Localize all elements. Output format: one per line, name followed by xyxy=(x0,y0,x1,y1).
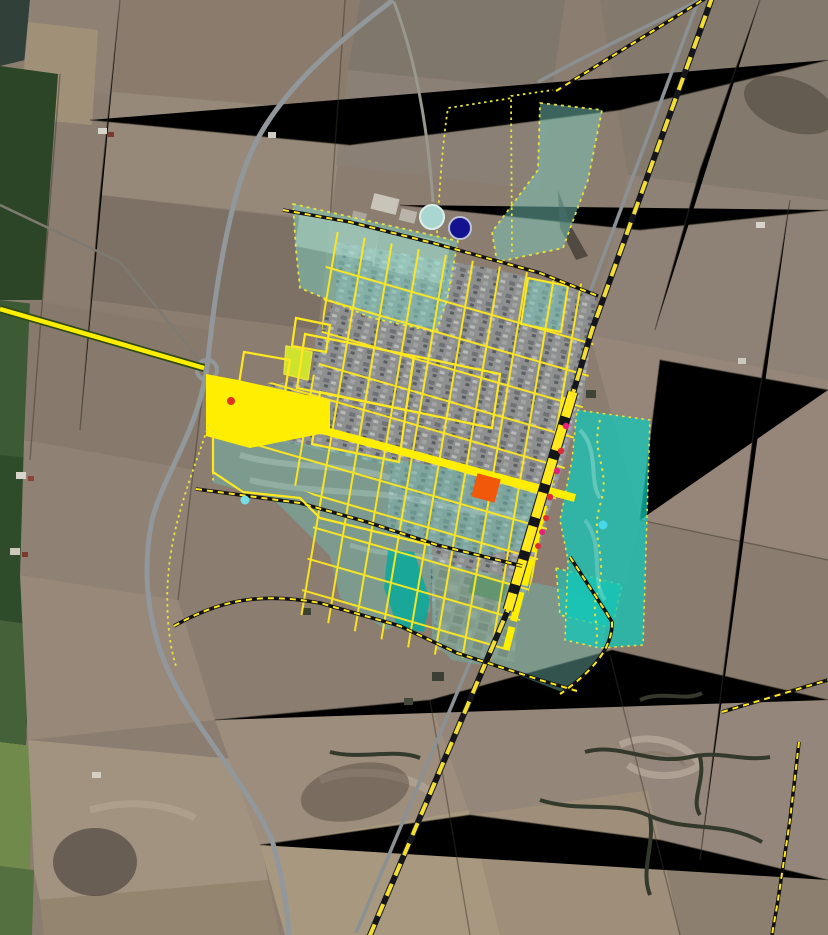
avenue-dot-1[interactable] xyxy=(563,423,569,429)
map-viewport[interactable] xyxy=(0,0,828,935)
water-tank-circle[interactable] xyxy=(420,205,444,229)
landmark-navy-circle[interactable] xyxy=(449,217,471,239)
junction-red-dot[interactable] xyxy=(227,397,235,405)
avenue-dot-4[interactable] xyxy=(547,494,553,500)
avenue-dot-2[interactable] xyxy=(558,448,564,454)
avenue-dot-3[interactable] xyxy=(554,468,560,474)
avenue-dot-6[interactable] xyxy=(539,529,545,535)
avenue-dot-7[interactable] xyxy=(535,543,541,549)
east-zone-cyan-dot[interactable] xyxy=(599,521,608,530)
parcel-teal-north[interactable] xyxy=(521,278,568,332)
avenue-dot-5[interactable] xyxy=(543,515,549,521)
map-canvas xyxy=(0,0,828,935)
west-zone-cyan-dot[interactable] xyxy=(241,496,250,505)
